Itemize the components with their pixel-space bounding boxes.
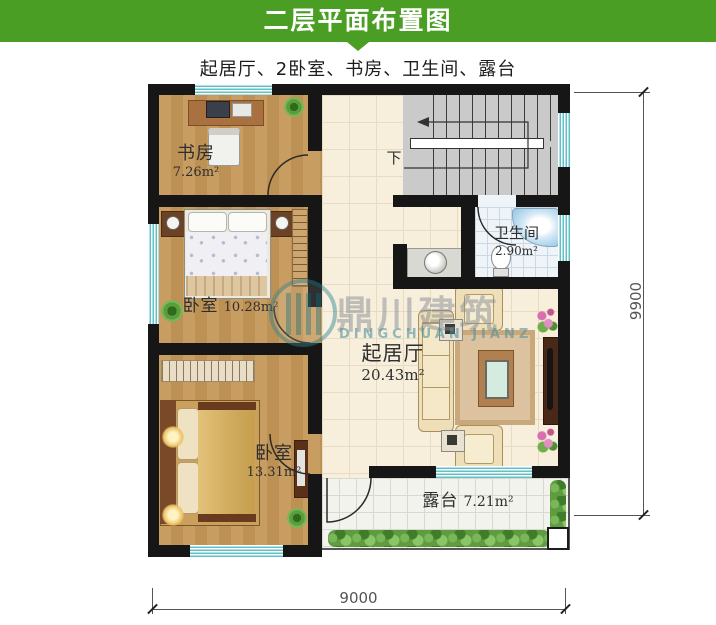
- living-label: 起居厅 20.43m²: [341, 340, 445, 386]
- dim-bottom-line: [152, 609, 565, 610]
- dim-right-ext-bottom: [574, 515, 650, 516]
- terrace-door-arc: [327, 478, 371, 522]
- terrace-label: 露台 7.21m²: [388, 490, 548, 512]
- room-summary-subtitle: 起居厅、2卧室、书房、卫生间、露台: [0, 55, 716, 81]
- stair-direction-arrow-icon: [417, 117, 429, 127]
- page-title: 二层平面布置图: [0, 0, 716, 42]
- stair-walkline: [404, 122, 528, 168]
- stairs-down-label: 下: [382, 148, 406, 169]
- title-banner: 二层平面布置图: [0, 0, 716, 42]
- dim-height-value: 9900: [627, 271, 645, 331]
- bathroom-label: 卫生间 2.90m²: [475, 224, 558, 259]
- study-label: 书房 7.26m²: [148, 142, 244, 182]
- bedroom2-label: 卧室 13.31m²: [234, 442, 314, 482]
- banner-pointer-icon: [347, 42, 369, 51]
- bedroom1-label: 卧室 10.28m²: [168, 295, 293, 317]
- dim-right-ext-top: [574, 92, 650, 93]
- study-door-arc: [268, 155, 308, 195]
- floor-plan: 书房 7.26m² 卧室 10.28m² 卧室 13.31m² 起居厅 20.4…: [148, 84, 570, 557]
- floorplan-page: 二层平面布置图 起居厅、2卧室、书房、卫生间、露台: [0, 0, 716, 625]
- dim-width-value: 9000: [152, 589, 565, 607]
